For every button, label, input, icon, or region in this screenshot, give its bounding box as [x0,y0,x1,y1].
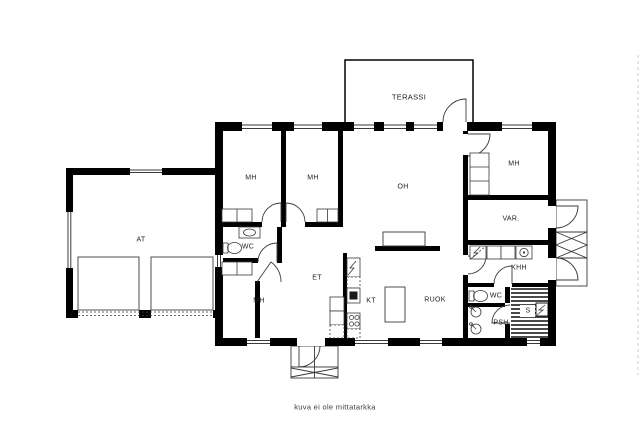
room-label-khh: KHH [511,265,527,272]
entrance-porch [291,346,338,378]
room-label-et: ET [312,275,322,282]
room-label-mh-bottom-left: MH [253,298,265,305]
room-label-mh-top-right: MH [508,161,520,168]
closets [222,153,489,275]
room-label-psh: PSH [493,320,508,327]
kitchen-island [385,287,405,322]
room-label-var: VAR. [502,216,519,223]
wc-right-door [494,266,512,284]
mh-top-left-door [262,203,281,222]
room-label-mh-top-left: MH [245,175,257,182]
mh-bottom-left-door [257,262,281,282]
room-label-sauna: S [526,308,531,315]
room-label-ruok: RUOK [424,297,445,304]
room-label-wc-right: WC [490,293,502,300]
mh-top-mid-door [286,203,305,222]
room-label-terassi: TERASSI [392,93,426,101]
psh-showers [470,306,481,334]
room-label-wc-left: WC [242,244,254,251]
khh-appliances [470,246,532,259]
floor-plan-canvas: TERASSI MH MH OH MH VAR. AT WC ET MH KT … [0,0,640,427]
room-label-mh-top-mid: MH [307,175,319,182]
disclaimer-note: kuva ei ole mittatarkka [294,403,376,411]
wc-right-fixtures [469,291,488,302]
east-porch [556,200,587,286]
room-label-at: AT [136,237,145,244]
room-label-kt: KT [366,298,376,305]
garage-doors [78,257,213,316]
fireplace [383,232,425,246]
terrace-door [443,99,466,122]
floor-plan-drawing [0,0,640,427]
room-label-oh: OH [397,184,408,191]
